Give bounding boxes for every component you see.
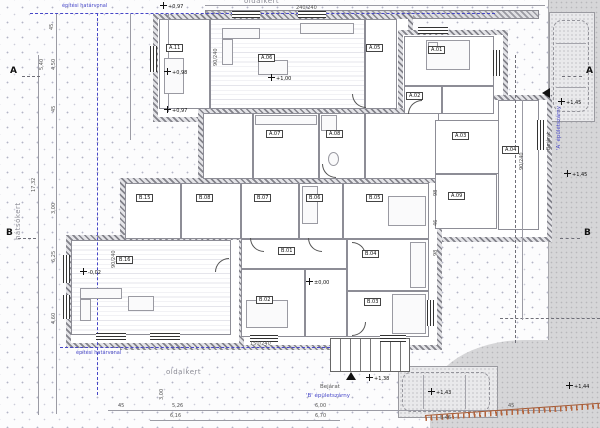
dimension-value: 45 xyxy=(118,404,124,409)
window xyxy=(537,120,544,150)
wardrobe xyxy=(410,242,426,288)
wing-a-label: 'A' épületszárny xyxy=(556,106,562,150)
section-line-b-right xyxy=(560,238,580,239)
section-line-a-left xyxy=(22,76,40,77)
room-b07 xyxy=(241,183,299,239)
building-boundary-line-bottom xyxy=(60,347,330,348)
section-marker-b-right: B xyxy=(584,228,591,238)
section-marker-b-left: B xyxy=(6,228,13,238)
level-cross-icon xyxy=(164,68,171,75)
bathtub xyxy=(302,186,318,224)
bed xyxy=(392,294,426,334)
boundary-label-bottom: építési határvonal xyxy=(76,350,121,356)
window xyxy=(380,335,406,342)
room-label: A.02 xyxy=(406,92,423,100)
dimension-line-right xyxy=(522,100,523,320)
window xyxy=(493,50,500,76)
window xyxy=(298,11,326,18)
window-size-tag: 90/240 xyxy=(520,152,525,170)
room-label: B.16 xyxy=(116,256,133,264)
window xyxy=(427,300,434,326)
dimension-value: 5,26 xyxy=(172,404,183,409)
room-a05 xyxy=(365,19,397,109)
dimension-value: 45 xyxy=(50,24,55,30)
dimension-line-bottom2 xyxy=(150,420,340,421)
bed xyxy=(388,196,426,226)
level-cross-icon xyxy=(160,2,167,9)
room-b15 xyxy=(125,183,181,239)
elevation-marker: -0,02 xyxy=(80,268,101,277)
window xyxy=(96,333,126,340)
dimension-value: 46 xyxy=(434,220,439,226)
dining-table xyxy=(258,60,288,75)
dimension-value: 6,70 xyxy=(315,414,326,419)
level-cross-icon xyxy=(164,106,171,113)
dimension-value: 98 xyxy=(434,190,439,196)
window xyxy=(63,295,70,319)
garden-label-bottom: oldalkert xyxy=(166,368,201,376)
dimension-value: 4,50 xyxy=(52,59,57,70)
room-label: B.03 xyxy=(364,298,381,306)
car-rear-line xyxy=(556,87,586,88)
dimension-value: 98 xyxy=(434,250,439,256)
window xyxy=(150,333,180,340)
room-label: A.08 xyxy=(326,130,343,138)
room-label: B.05 xyxy=(366,194,383,202)
entrance-stairs xyxy=(330,338,410,372)
room-label: A.03 xyxy=(452,132,469,140)
car-rear-line xyxy=(465,375,466,409)
room-label: B.02 xyxy=(256,296,273,304)
room-a09 xyxy=(435,174,497,229)
garden-label-left: hátsókert xyxy=(14,202,22,240)
room-label: A.04 xyxy=(502,146,519,154)
entrance-b-arrow-icon xyxy=(346,372,356,380)
sofa xyxy=(222,28,260,39)
garden-label-top: oldalkert xyxy=(244,0,279,5)
room-a-bed-mid xyxy=(203,113,253,179)
property-line-right xyxy=(515,55,516,343)
room-b08 xyxy=(181,183,241,239)
level-cross-icon xyxy=(80,268,87,275)
dimension-value: 45 xyxy=(508,404,514,409)
room-label: B.04 xyxy=(362,250,379,258)
elevation-marker: +0,97 xyxy=(160,2,183,11)
dimension-value: 17,32 xyxy=(32,178,37,192)
room-label: A.11 xyxy=(166,44,183,52)
room-label: A.06 xyxy=(258,54,275,62)
room-label: B.06 xyxy=(306,194,323,202)
sofa xyxy=(80,299,91,321)
level-cross-icon xyxy=(366,374,373,381)
room-a-bath-upper xyxy=(442,86,494,114)
elevation-marker: +1,43 xyxy=(428,388,451,397)
elevation-marker: +1,00 xyxy=(268,74,291,83)
dimension-line-top xyxy=(205,5,545,6)
room-label: B.15 xyxy=(136,194,153,202)
room-label: A.09 xyxy=(448,192,465,200)
property-line-bottom-right xyxy=(500,318,600,319)
elevation-marker: +1,44 xyxy=(566,382,589,391)
entrance-b-label: Bejárat xyxy=(320,384,340,390)
level-cross-icon xyxy=(558,98,565,105)
level-cross-icon xyxy=(564,170,571,177)
level-cross-icon xyxy=(428,388,435,395)
level-cross-icon xyxy=(306,278,313,285)
sofa xyxy=(80,288,122,299)
shower xyxy=(321,115,337,131)
section-marker-a-left: A xyxy=(10,66,17,76)
dimension-line-left-outer xyxy=(38,55,39,415)
window-size-tag: 90/240 xyxy=(112,250,117,268)
elevation-marker: +1,45 xyxy=(564,170,587,179)
room-label: B.08 xyxy=(196,194,213,202)
window xyxy=(150,46,157,72)
room-label: B.07 xyxy=(254,194,271,202)
section-line-a-right xyxy=(562,76,582,77)
bed xyxy=(246,300,288,328)
window xyxy=(418,27,448,34)
wing-b-label: 'B' épületszárny xyxy=(306,393,350,399)
elevation-marker: +1,38 xyxy=(366,374,389,383)
room-label: B.01 xyxy=(278,247,295,255)
level-cross-icon xyxy=(268,74,275,81)
wardrobe xyxy=(300,23,354,34)
building-boundary-line-top xyxy=(30,13,495,14)
boundary-label-top: építési határvonal xyxy=(62,3,107,9)
dimension-value: 3,00 xyxy=(52,203,57,214)
level-cross-icon xyxy=(566,382,573,389)
window-size-tag: 150/240 xyxy=(250,342,271,347)
dimension-value: 6,25 xyxy=(52,251,57,262)
car-windshield-line xyxy=(423,375,424,409)
room-label: A.05 xyxy=(366,44,383,52)
elevation-marker: +0,98 xyxy=(164,68,187,77)
room-a-corridor xyxy=(365,113,439,179)
coffee-table xyxy=(128,296,154,311)
dimension-value: 45 xyxy=(52,106,57,112)
window-size-tag: 90/240 xyxy=(214,48,219,66)
car-windshield-line xyxy=(556,43,586,44)
elevation-marker: ±0,00 xyxy=(306,278,329,287)
dimension-line-left-aux xyxy=(130,14,131,140)
elevation-marker: +0,97 xyxy=(164,106,187,115)
window xyxy=(63,255,70,283)
entrance-a-label: Bejárat xyxy=(546,132,552,150)
sofa xyxy=(222,39,233,65)
dimension-value: 6,16 xyxy=(170,414,181,419)
room-label: A.01 xyxy=(428,46,445,54)
dimension-line-left-inner xyxy=(56,14,57,414)
entrance-a-arrow-icon xyxy=(542,88,550,98)
dimension-value: 5,40 xyxy=(40,59,45,70)
dimension-value: 3,00 xyxy=(160,389,165,400)
window-size-tag: 240/240 xyxy=(296,6,317,11)
dimension-value: 6,00 xyxy=(315,404,326,409)
floor-plan-canvas: A.11 A.06 A.05 A.01 A.02 A.07 A.08 A.03 … xyxy=(0,0,600,428)
dimension-value: 5,46 xyxy=(440,416,451,421)
section-marker-a-right: A xyxy=(586,66,593,76)
window xyxy=(232,11,260,18)
dimension-value: 4,60 xyxy=(52,313,57,324)
kitchen-counter xyxy=(255,115,317,125)
room-label: A.07 xyxy=(266,130,283,138)
